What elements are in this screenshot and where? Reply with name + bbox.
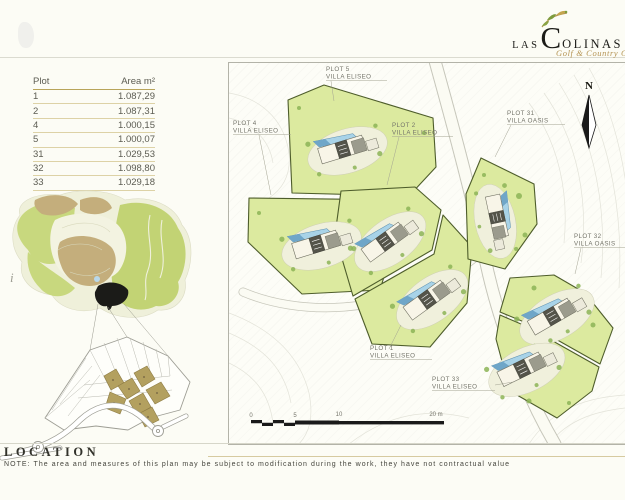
label-plot-31-line1: PLOT 31 <box>507 110 535 117</box>
label-plot-33-line1: PLOT 33 <box>432 376 460 383</box>
plot-number: 5 <box>33 133 70 147</box>
table-row: 321.098,80 <box>33 161 155 175</box>
paper-smudge <box>18 22 34 48</box>
brand-las-text: LAS <box>512 40 539 51</box>
label-plot-33-line2: VILLA ELISEO <box>432 384 477 391</box>
table-row: 51.000,07 <box>33 133 155 147</box>
olive-branch-icon <box>539 7 571 29</box>
plot-sketch <box>2 337 190 458</box>
scale-tick-0: 0 <box>249 413 253 419</box>
plot-area: 1.029,53 <box>70 147 155 161</box>
scale-tick-20m: 20 m <box>429 412 442 418</box>
label-plot-31-line2: VILLA OASIS <box>507 118 549 125</box>
label-plot-2-line2: VILLA ELISEO <box>392 130 437 137</box>
map-marker-i: i <box>10 270 14 285</box>
label-plot-2-line1: PLOT 2 <box>392 122 416 129</box>
footer-note: NOTE: The area and measures of this plan… <box>4 461 510 468</box>
scale-tick-10: 10 <box>336 412 343 418</box>
label-plot-32-line1: PLOT 32 <box>574 233 602 240</box>
label-plot-4-line1: PLOT 4 <box>233 120 257 127</box>
plot-area: 1.000,15 <box>70 118 155 132</box>
col-header-area: Area m² <box>70 76 155 90</box>
table-header-row: Plot Area m² <box>33 76 155 90</box>
scale-tick-5: 5 <box>293 413 297 419</box>
plot-area: 1.000,07 <box>70 133 155 147</box>
table-row: 11.087,29 <box>33 90 155 104</box>
brand-subtitle: Golf & Country Club <box>556 48 625 58</box>
site-plan-panel: PLOT 5 VILLA ELISEO PLOT 4 VILLA ELISEO … <box>228 62 625 445</box>
plot-number: 2 <box>33 104 70 118</box>
label-plot-5-line2: VILLA ELISEO <box>326 74 371 81</box>
header-divider <box>0 57 625 58</box>
north-arrow: N <box>582 80 596 148</box>
plot-number: 4 <box>33 118 70 132</box>
table-row: 311.029,53 <box>33 147 155 161</box>
site-plan-drawing: PLOT 5 VILLA ELISEO PLOT 4 VILLA ELISEO … <box>229 63 625 444</box>
location-overview-art: i <box>0 180 210 465</box>
plot-area: 1.087,31 <box>70 104 155 118</box>
label-plot-5-line1: PLOT 5 <box>326 66 350 73</box>
scale-bar: 0 5 10 20 m <box>249 412 444 426</box>
plot-number: 32 <box>33 161 70 175</box>
footer-rule <box>208 456 625 457</box>
plot-number: 31 <box>33 147 70 161</box>
label-plot-1-line2: VILLA ELISEO <box>370 353 415 360</box>
north-label: N <box>585 80 593 92</box>
plot-area-table: Plot Area m² 11.087,29 21.087,31 41.000,… <box>33 76 155 191</box>
plot-area: 1.087,29 <box>70 90 155 104</box>
resort-map <box>13 191 191 318</box>
plot-area: 1.098,80 <box>70 161 155 175</box>
col-header-plot: Plot <box>33 76 70 90</box>
site-plan-sheet: { "header": { "brand": { "las": "LAS", "… <box>0 0 625 500</box>
plot-number: 1 <box>33 90 70 104</box>
label-plot-4-line2: VILLA ELISEO <box>233 128 278 135</box>
table-row: 41.000,15 <box>33 118 155 132</box>
table-row: 21.087,31 <box>33 104 155 118</box>
footer-divider <box>0 443 625 444</box>
footer-title: LOCATION <box>4 445 99 460</box>
label-plot-32-line2: VILLA OASIS <box>574 241 616 248</box>
